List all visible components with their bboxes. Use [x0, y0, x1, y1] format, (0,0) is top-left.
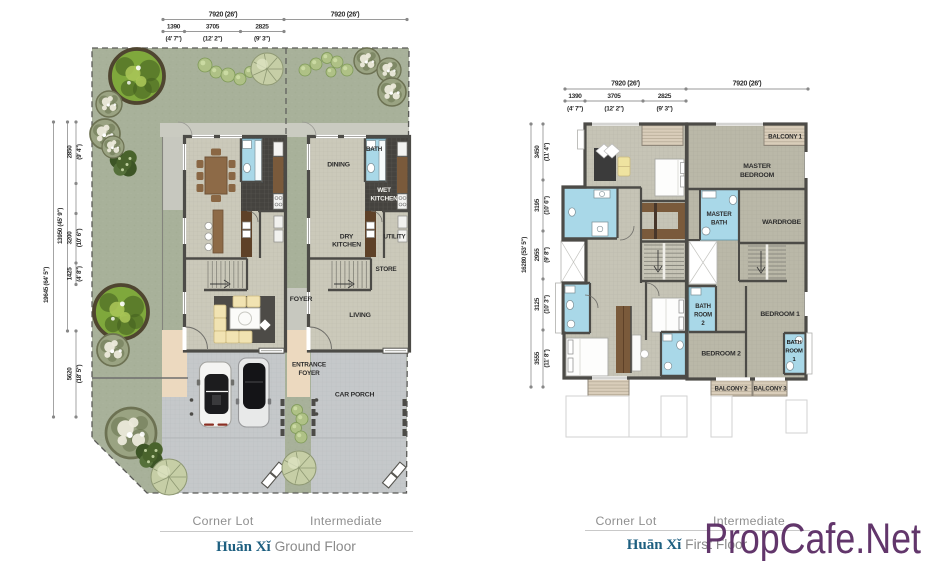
svg-text:Corner Lot: Corner Lot [595, 514, 656, 528]
svg-text:ENTRANCE: ENTRANCE [292, 362, 327, 369]
svg-text:Corner Lot: Corner Lot [192, 514, 253, 528]
svg-text:BEDROOM 2: BEDROOM 2 [701, 351, 741, 358]
svg-text:7920 (26′): 7920 (26′) [209, 12, 238, 19]
svg-text:WARDROBE: WARDROBE [762, 219, 801, 226]
svg-text:STORE: STORE [376, 266, 398, 273]
svg-text:7920 (26′): 7920 (26′) [733, 81, 762, 88]
svg-text:1390: 1390 [167, 24, 181, 31]
svg-text:BALCONY 3: BALCONY 3 [754, 387, 788, 393]
svg-text:WET: WET [377, 187, 391, 194]
svg-text:DINING: DINING [327, 162, 350, 169]
svg-text:(9′ 3″): (9′ 3″) [657, 106, 673, 113]
svg-text:3705: 3705 [607, 93, 621, 100]
svg-text:BATH: BATH [366, 146, 383, 153]
svg-text:2825: 2825 [255, 24, 269, 31]
svg-text:(10′ 6″): (10′ 6″) [544, 196, 551, 215]
svg-text:KITCHEN: KITCHEN [332, 242, 361, 249]
svg-text:(4′ 7″): (4′ 7″) [567, 106, 583, 113]
svg-text:(11′ 8″): (11′ 8″) [544, 349, 551, 367]
svg-text:(9′ 8″): (9′ 8″) [544, 247, 551, 263]
svg-text:1425: 1425 [67, 267, 74, 281]
svg-text:Huān Xǐ Ground Floor: Huān Xǐ Ground Floor [216, 539, 356, 555]
svg-text:16280 (53′ 5″): 16280 (53′ 5″) [521, 237, 528, 273]
svg-text:ROOM: ROOM [694, 313, 712, 319]
svg-text:BALCONY 1: BALCONY 1 [768, 134, 803, 141]
svg-text:MASTER: MASTER [743, 163, 771, 170]
svg-text:3450: 3450 [534, 145, 541, 159]
svg-text:DRY: DRY [340, 234, 354, 241]
svg-text:FOYER: FOYER [290, 296, 313, 303]
svg-text:19645 (64′ 5″): 19645 (64′ 5″) [43, 267, 50, 303]
svg-text:(4′ 8″): (4′ 8″) [76, 266, 83, 282]
svg-text:2825: 2825 [658, 93, 672, 100]
svg-text:UTILITY: UTILITY [384, 234, 407, 241]
svg-text:(10′ 6″): (10′ 6″) [76, 229, 83, 248]
svg-text:3200: 3200 [67, 231, 74, 245]
svg-text:LIVING: LIVING [349, 312, 370, 319]
svg-text:3705: 3705 [206, 24, 220, 31]
svg-text:7920 (26′): 7920 (26′) [331, 12, 360, 19]
svg-text:2850: 2850 [67, 145, 74, 159]
svg-text:1390: 1390 [568, 93, 582, 100]
svg-text:FOYER: FOYER [298, 370, 320, 377]
svg-text:ROOM: ROOM [785, 349, 803, 355]
svg-text:Intermediate: Intermediate [310, 514, 382, 528]
svg-text:(4′ 7″): (4′ 7″) [166, 36, 182, 43]
svg-text:3195: 3195 [534, 198, 541, 212]
svg-text:7920 (26′): 7920 (26′) [611, 81, 640, 88]
svg-text:KITCHEN: KITCHEN [370, 196, 398, 203]
svg-text:BATH: BATH [711, 220, 728, 227]
svg-text:(18′ 5″): (18′ 5″) [76, 365, 83, 384]
svg-text:BEDROOM 1: BEDROOM 1 [760, 311, 800, 318]
svg-text:(9′ 3″): (9′ 3″) [254, 36, 270, 43]
svg-text:CAR PORCH: CAR PORCH [335, 392, 375, 399]
svg-text:(12′ 2″): (12′ 2″) [203, 36, 222, 43]
svg-text:BALCONY 2: BALCONY 2 [715, 387, 749, 393]
svg-text:PropCafe.Net: PropCafe.Net [704, 516, 921, 561]
svg-text:13950 (45′ 9″): 13950 (45′ 9″) [57, 208, 64, 244]
svg-text:(10′ 3″): (10′ 3″) [544, 295, 551, 314]
svg-text:BATH: BATH [695, 304, 710, 310]
svg-text:(9′ 4″): (9′ 4″) [76, 144, 83, 160]
svg-text:BATH: BATH [787, 340, 802, 346]
svg-text:(12′ 2″): (12′ 2″) [604, 106, 623, 113]
svg-text:BEDROOM: BEDROOM [740, 172, 775, 179]
svg-text:3555: 3555 [534, 351, 541, 365]
svg-text:(11′ 4″): (11′ 4″) [544, 143, 551, 161]
svg-text:3125: 3125 [534, 297, 541, 311]
svg-text:MASTER: MASTER [707, 211, 733, 218]
svg-text:5620: 5620 [67, 367, 74, 381]
svg-text:2955: 2955 [534, 248, 541, 262]
